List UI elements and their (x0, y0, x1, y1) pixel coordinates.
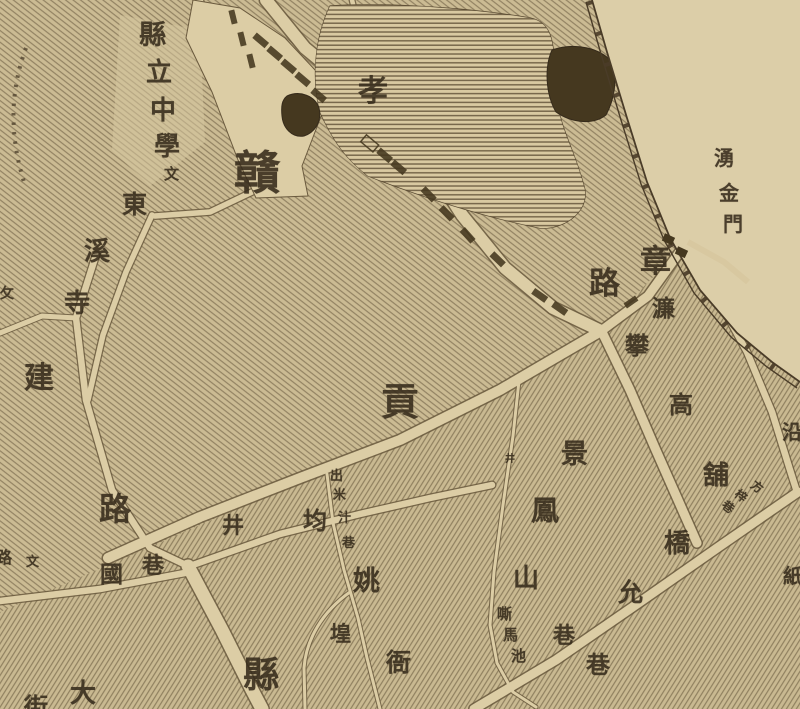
historical-map-canvas[interactable]: 縣立中學文東溪寺贛孝湧金門章路濂攀高舖方梓巷貢景鳳山巷嘶馬池橋允巷建路均井巷國路… (0, 0, 800, 709)
pond-west (282, 94, 320, 137)
pond-east (547, 46, 615, 121)
map-graphic (0, 0, 800, 709)
